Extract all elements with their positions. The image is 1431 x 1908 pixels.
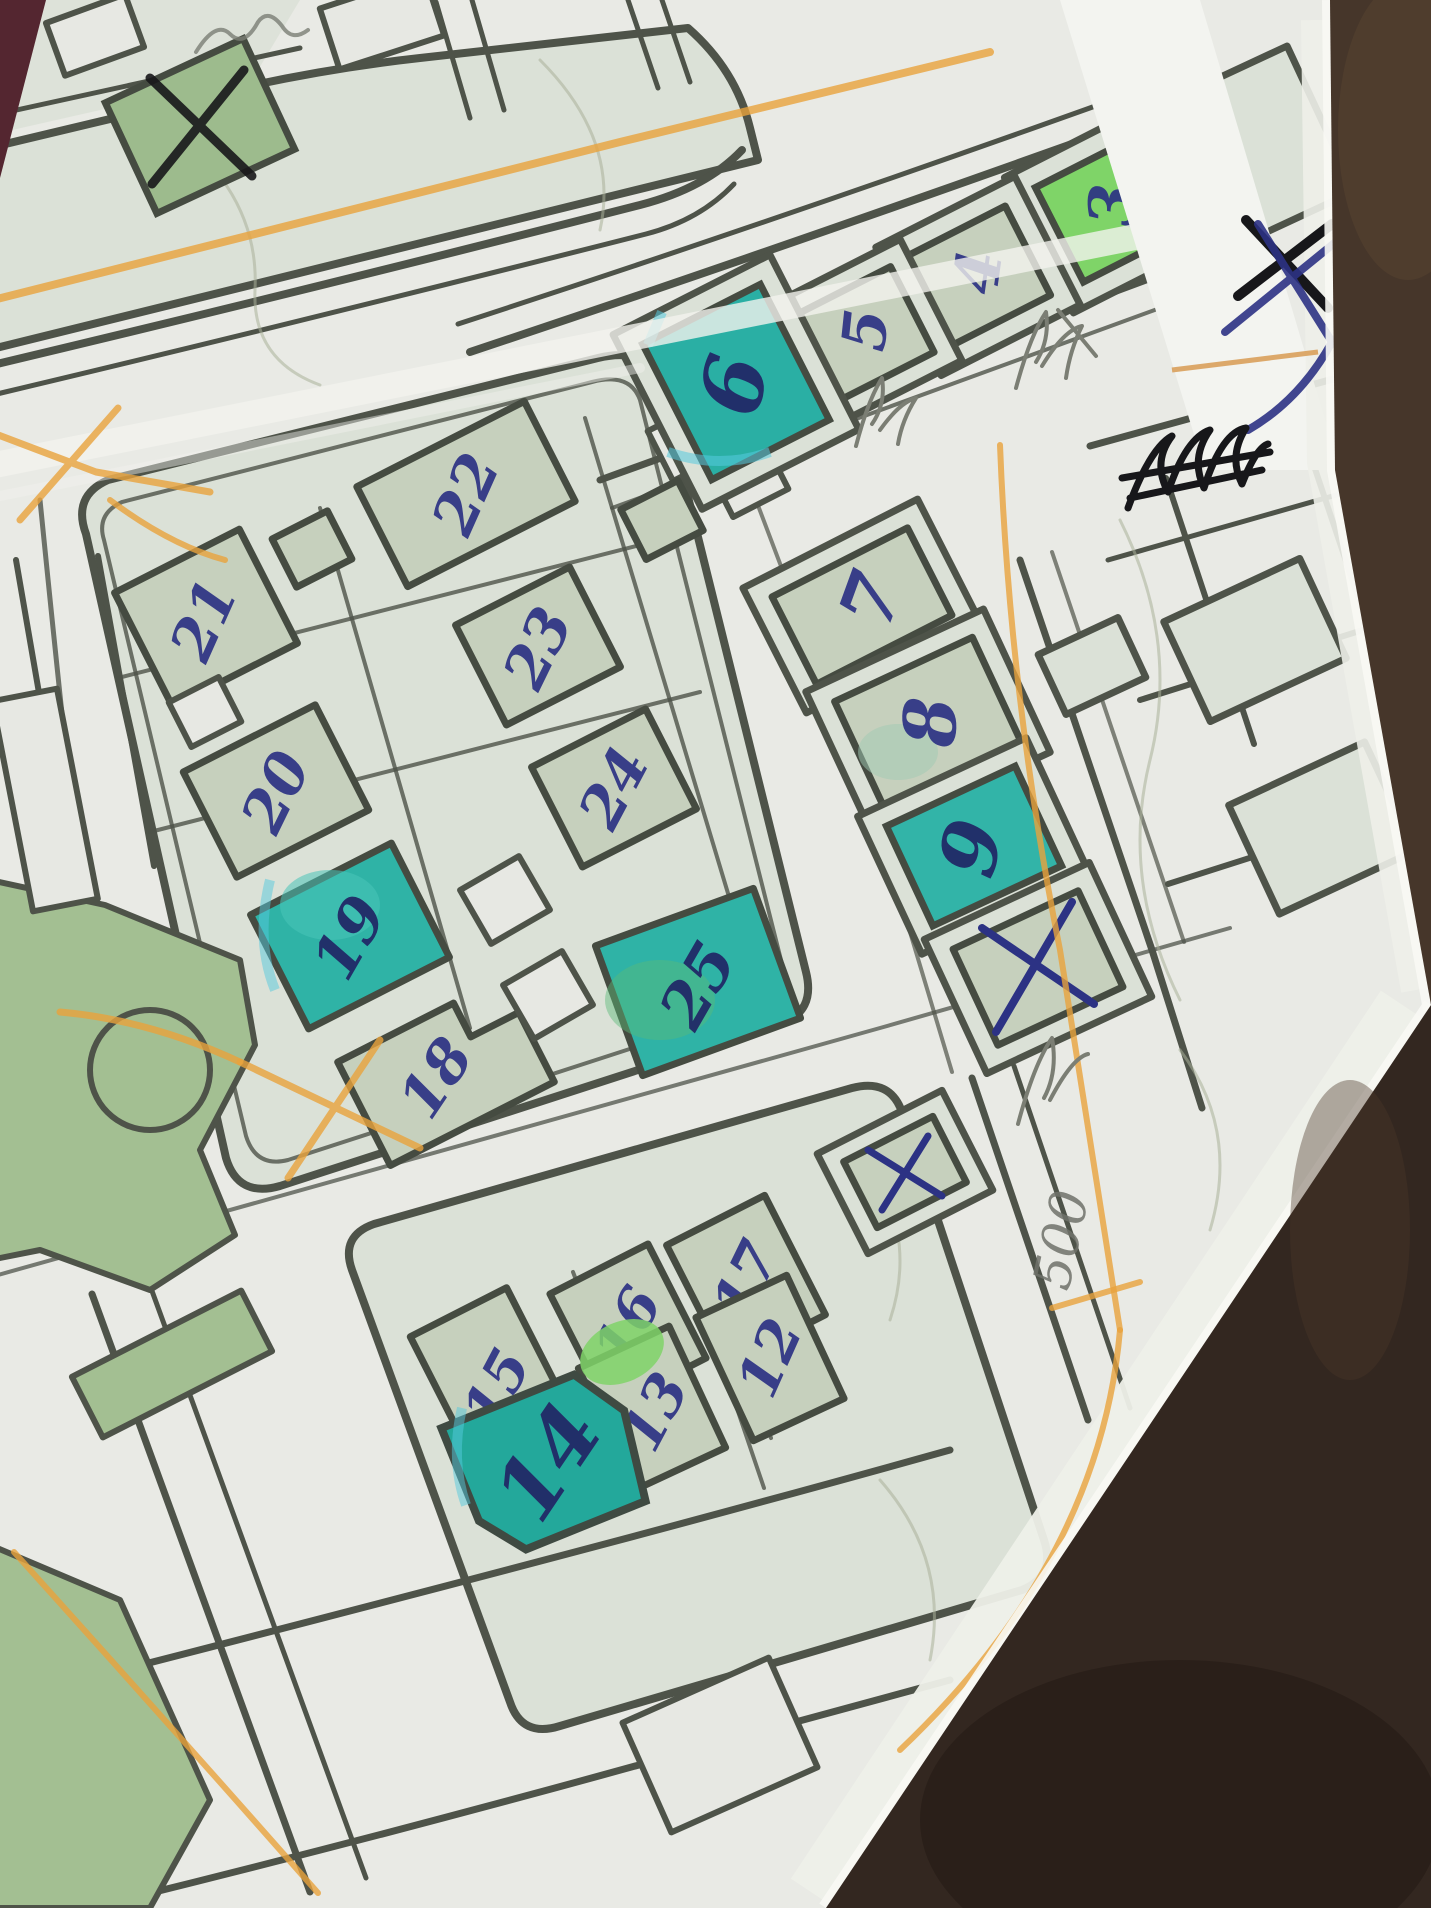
map-photo-svg: 21 22 23 24 20 19 — [0, 0, 1431, 1908]
building-label-5: 5 — [829, 306, 903, 355]
building-label-8: 8 — [887, 695, 974, 749]
leather-sheen — [1290, 1080, 1410, 1380]
annotated-map-photo: 21 22 23 24 20 19 — [0, 0, 1431, 1908]
